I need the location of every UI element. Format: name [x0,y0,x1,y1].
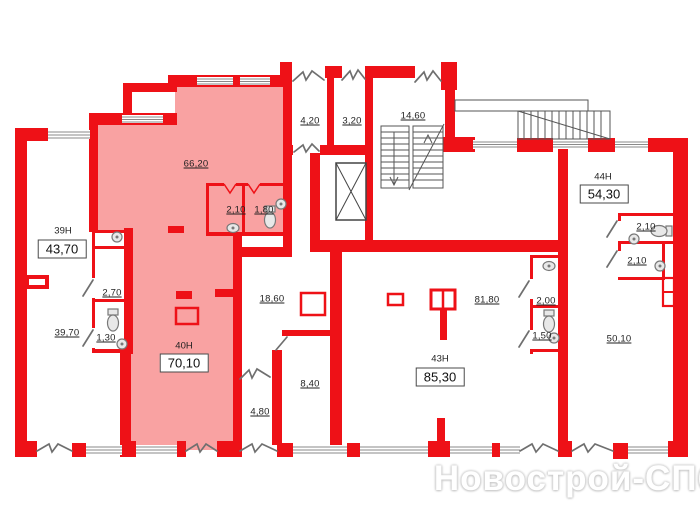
room-area-label: 8,40 [300,379,319,390]
room-area-label: 2,10 [627,256,646,267]
developer-watermark: Новострой-СПб [434,459,700,499]
sink-icon [117,339,127,349]
room-area-label: 81,80 [475,295,500,306]
room-area-label: 2,10 [636,222,655,233]
sink-icon [543,262,555,271]
sink-icon [655,261,665,271]
elevator-shaft [336,163,366,220]
room-area-label: 39,70 [55,328,80,339]
floor-plan-drawing [0,0,700,525]
toilet-icon [544,310,555,332]
floor-plan: 66,20 2,10 1,80 40Н 70,10 39Н 43,70 39,7… [0,0,700,525]
unit-code-label: 43Н [431,354,448,365]
room-area-label: 1,30 [96,333,115,344]
room-area-label: 66,20 [184,159,209,170]
room-area-label: 1,80 [254,205,273,216]
room-area-label: 50,10 [607,334,632,345]
room-area-label: 4,20 [300,116,319,127]
room-area-label: 18,60 [260,294,285,305]
unit-total-area-box: 70,10 [160,354,209,373]
unit-code-label: 40Н [175,341,192,352]
stairwell-treads [381,124,444,190]
unit-total-area-box: 43,70 [38,240,87,259]
sink-icon [112,232,122,242]
room-area-label: 2,70 [102,288,121,299]
sink-icon [276,199,286,209]
external-stair [455,100,610,139]
room-area-label: 2,10 [226,205,245,216]
room-area-label: 4,80 [250,407,269,418]
room-area-label: 1,50 [532,331,551,342]
unit-total-area-box: 85,30 [416,368,465,387]
unit-code-label: 44Н [594,172,611,183]
unit-code-label: 39Н [54,226,71,237]
room-area-label: 14,60 [401,111,426,122]
sink-icon [227,224,239,233]
room-area-label: 3,20 [342,116,361,127]
toilet-icon [108,309,119,331]
room-area-label: 2,00 [536,296,555,307]
sink-icon [629,234,639,244]
unit-total-area-box: 54,30 [580,185,629,204]
